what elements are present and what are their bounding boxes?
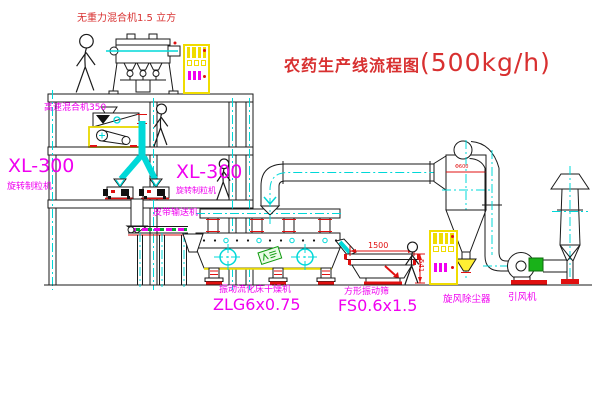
label-cyclone: 旋风除尘器	[443, 295, 491, 305]
cabinet-button-row-icon	[433, 246, 454, 252]
cyclone-tag: Φ600	[455, 165, 468, 170]
label-belt-conveyor: 皮带输送机	[153, 209, 198, 218]
indicator-dot-icon	[203, 75, 206, 78]
dryer-exhaust-stubs	[206, 218, 332, 233]
person-figure	[76, 34, 95, 92]
dimension-sieve-height: 541	[417, 259, 424, 272]
granulator-machine-right	[139, 179, 169, 199]
process-flow-diagram: 农药生产线流程图(500kg/h) 无重力混合机1.5 立方 高速混合机350 …	[0, 0, 600, 403]
label-dryer-model: ZLG6x0.75	[213, 297, 301, 313]
indicator-dot-icon	[451, 266, 454, 269]
cabinet-display-icon	[434, 263, 447, 272]
high-speed-mixer-machine	[88, 107, 147, 147]
mixer-discharge-valves	[124, 63, 162, 80]
label-granulator-right-model: XL-300	[176, 163, 242, 182]
gravity-mixer-machine	[106, 34, 180, 94]
stack-base	[561, 279, 579, 284]
label-high-speed-mixer: 高速混合机350	[44, 104, 106, 113]
title-text: 农药生产线流程图	[284, 56, 420, 75]
control-cabinet-ground	[429, 230, 458, 285]
label-dryer-name: 振动流化床干燥机	[219, 286, 291, 295]
cabinet-button-row-icon	[187, 60, 206, 66]
title-capacity: (500kg/h)	[420, 48, 551, 77]
belt-conveyor-machine	[128, 227, 188, 288]
label-granulator-left-name: 旋转制粒机	[7, 183, 52, 192]
label-fan: 引风机	[508, 293, 537, 303]
conveyor-supports	[138, 233, 187, 287]
induced-draft-fan-machine	[508, 253, 568, 285]
indicator-dot-icon	[203, 49, 206, 52]
fan-base	[511, 280, 547, 285]
label-granulator-left-model: XL-300	[8, 157, 74, 176]
dryer-spring-mounts	[205, 268, 335, 285]
granulator-machine-left	[103, 179, 133, 199]
indicator-dot-icon	[174, 42, 177, 45]
fan-motor	[529, 258, 543, 271]
downcomer-duct	[482, 150, 522, 271]
cabinet-display-icon	[188, 71, 201, 80]
label-sieve-model: FS0.6x1.5	[338, 298, 417, 314]
indicator-dot-icon	[451, 235, 454, 238]
exhaust-stack	[551, 166, 589, 286]
dimension-sieve-length: 1500	[368, 242, 388, 250]
label-granulator-right-name: 旋转制粒机	[176, 187, 216, 195]
discharge-cone	[456, 259, 476, 271]
diagram-title: 农药生产线流程图(500kg/h)	[284, 50, 551, 75]
control-cabinet-upper	[183, 44, 210, 94]
fluid-bed-dryer-machine	[183, 209, 344, 285]
label-gravity-mixer: 无重力混合机1.5 立方	[77, 14, 176, 24]
